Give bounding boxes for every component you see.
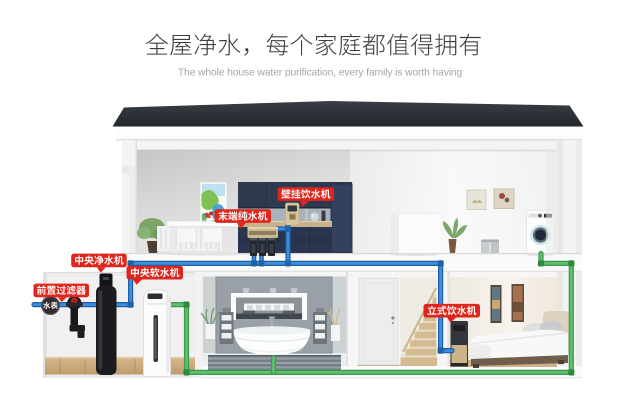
svg-text:The whole house water purifica: The whole house water purification, ever… <box>178 68 463 79</box>
